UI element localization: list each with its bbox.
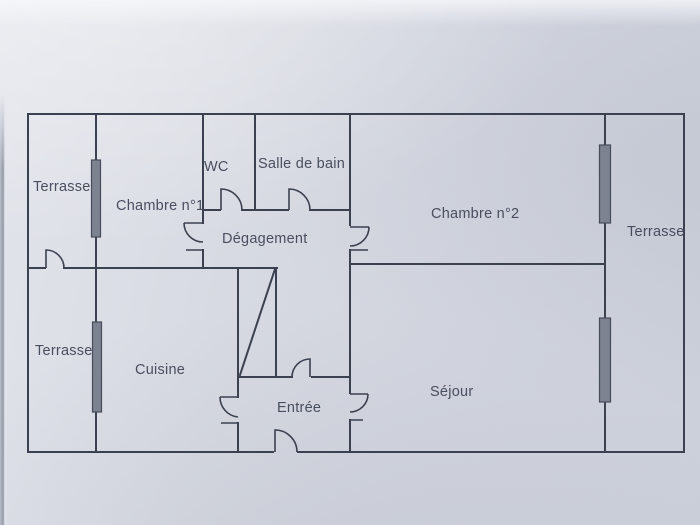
room-label-bedroom-2: Chambre n°2 — [431, 207, 519, 222]
room-label-entry: Entrée — [277, 401, 321, 416]
door-bedroom2 — [350, 227, 369, 250]
floor-plan-photo: { "document": { "kind": "apartment floor… — [0, 0, 700, 525]
walls — [28, 114, 684, 452]
window-living-terrace — [600, 318, 611, 402]
room-label-terrace-right: Terrasse — [627, 225, 685, 240]
room-label-bathroom: Salle de bain — [258, 157, 345, 172]
closet-diagonal — [240, 269, 275, 375]
door-living-room — [350, 394, 368, 420]
door-terrace-left — [46, 250, 64, 268]
room-label-kitchen: Cuisine — [135, 363, 185, 378]
door-front-entrance — [275, 430, 297, 452]
door-kitchen — [220, 397, 238, 423]
room-label-hallway: Dégagement — [222, 232, 308, 247]
room-label-terrace-upper-left: Terrasse — [33, 180, 91, 195]
floor-plan-drawing — [0, 0, 700, 525]
door-wc — [221, 189, 242, 210]
door-hallway-entry — [292, 359, 310, 377]
room-label-bedroom-1: Chambre n°1 — [116, 199, 204, 214]
room-label-terrace-lower-left: Terrasse — [35, 344, 93, 359]
room-label-wc: WC — [204, 160, 229, 175]
window-terrace-upper-left — [92, 160, 101, 237]
window-terrace-lower-left — [93, 322, 102, 412]
door-bathroom — [289, 189, 310, 210]
window-bedroom2-terrace — [600, 145, 611, 223]
room-label-living-room: Séjour — [430, 385, 473, 400]
door-bedroom1 — [184, 223, 203, 250]
